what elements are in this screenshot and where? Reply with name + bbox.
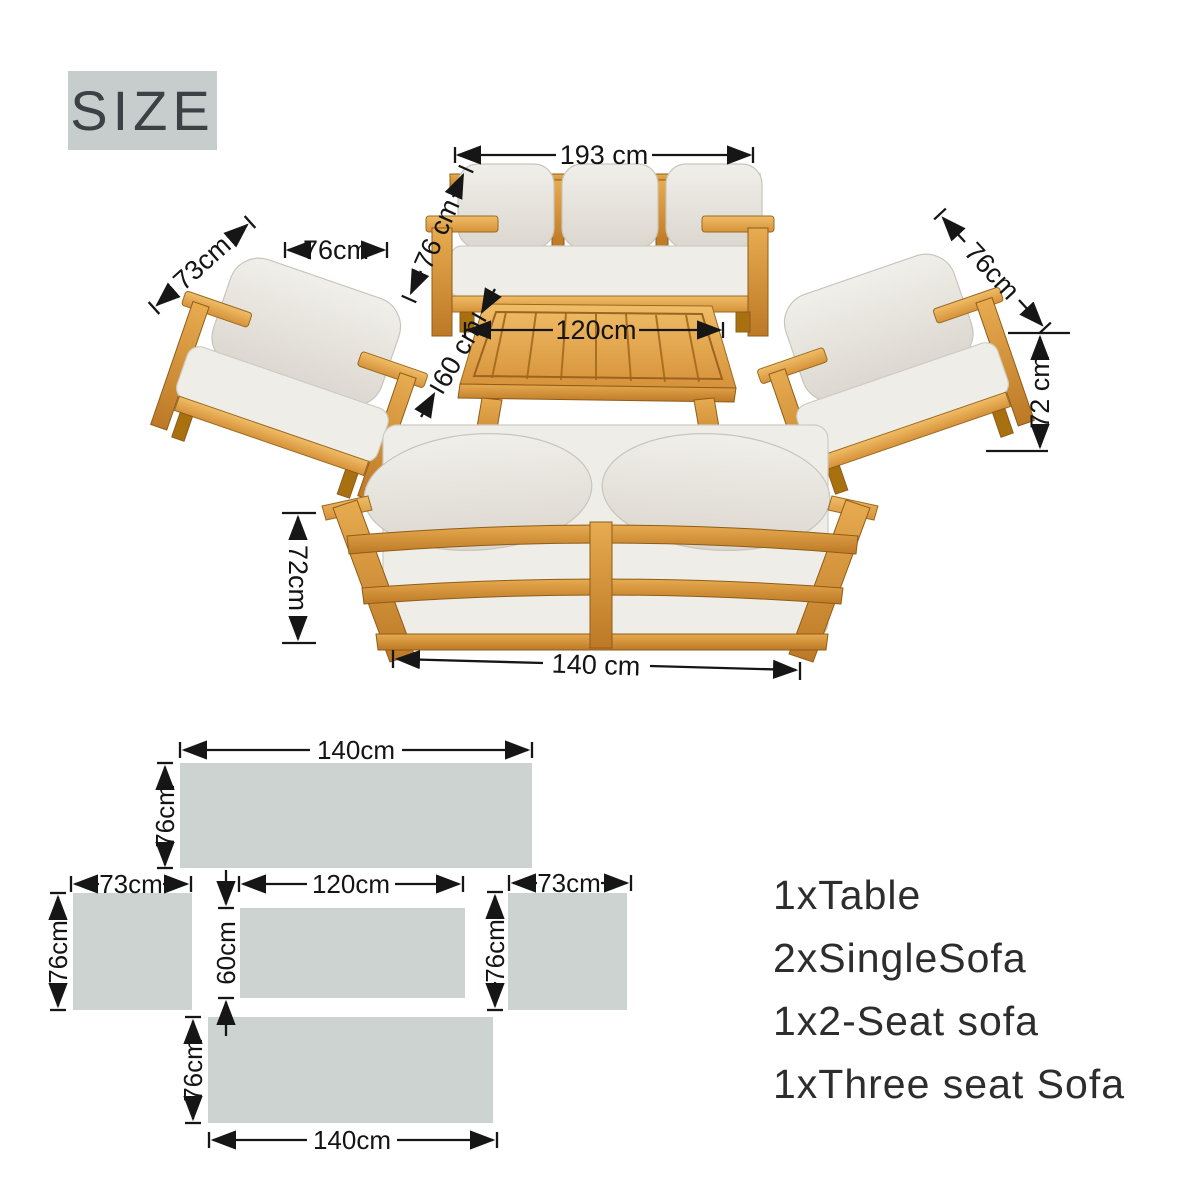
furniture-photo-scene: 193 cm 76 cm 73cm 76cm 76cm 72 cm [0,0,1200,720]
dim-label-two-seat-height: 72cm [283,545,313,611]
package-item-table: 1xTable [773,864,1125,927]
fp-dim-single-right-depth: 76cm [480,892,510,1010]
floor-plan-rect-table [240,908,465,998]
fp-dim-two-seat-width: 140cm [180,735,532,765]
floor-plan-rect-three-seat [208,1017,493,1123]
fp-label-three-seat-width: 140cm [313,1125,391,1155]
fp-label-single-left-width: 73cm [99,869,163,899]
dim-label-two-seat-width: 140 cm [551,648,641,681]
fp-label-table-width: 120cm [312,869,390,899]
floor-plan: 140cm 76cm 73cm 76cm 120cm 60cm [0,720,700,1200]
dim-two-seat-height: 72cm [282,513,316,643]
dim-label-single-left-depth: 73cm [167,230,236,296]
floor-plan-rect-single-right [508,893,627,1010]
dim-single-left-width: 76cm [285,235,387,265]
fp-label-three-seat-depth: 76cm [178,1038,208,1102]
fp-dim-single-left-depth: 76cm [43,893,73,1010]
fp-dim-table-depth: 60cm [211,870,241,1036]
fp-dim-three-seat-depth: 76cm [178,1017,208,1123]
fp-dim-three-seat-width: 140cm [209,1125,497,1155]
floor-plan-rect-single-left [73,893,192,1010]
fp-label-single-right-width: 73cm [537,868,601,898]
dim-label-single-left-width: 76cm [303,235,369,265]
fp-label-single-left-depth: 76cm [43,920,73,984]
two-seat-sofa-illustration [322,425,878,662]
fp-label-two-seat-width: 140cm [317,735,395,765]
dim-label-table-length: 120cm [555,315,636,345]
package-item-three-seat-sofa: 1xThree seat Sofa [773,1053,1125,1116]
fp-label-two-seat-depth: 76cm [150,784,180,848]
fp-dim-table-width: 120cm [239,869,463,899]
package-item-two-seat-sofa: 1x2-Seat sofa [773,990,1125,1053]
package-item-single-sofa: 2xSingleSofa [773,927,1125,990]
dim-label-three-seat-width: 193 cm [560,140,649,170]
dim-two-seat-width: 140 cm [393,648,800,681]
floor-plan-rect-two-seat [180,763,532,868]
fp-dim-two-seat-depth: 76cm [150,763,180,868]
fp-label-table-depth: 60cm [211,921,241,985]
fp-label-single-right-depth: 76cm [480,919,510,983]
dim-label-single-right-height: 72 cm [1025,355,1055,429]
package-contents-list: 1xTable 2xSingleSofa 1x2-Seat sofa 1xThr… [773,864,1125,1116]
